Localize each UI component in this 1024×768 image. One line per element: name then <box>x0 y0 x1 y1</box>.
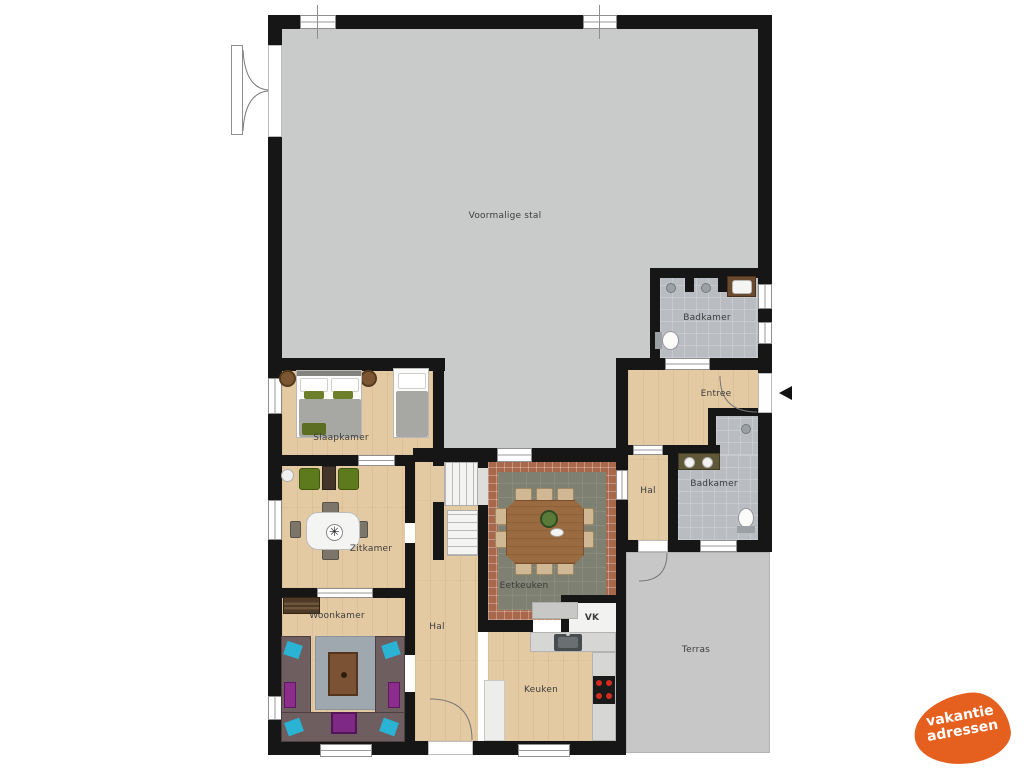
table-plant <box>540 510 558 528</box>
room-label-voormalige-stal: Voormalige stal <box>469 211 542 221</box>
armchair-2 <box>338 468 359 490</box>
wall-badkamer-step-h <box>712 408 758 416</box>
room-label-badkamer-boven: Badkamer <box>683 313 731 323</box>
window-top-1 <box>300 15 336 29</box>
wall-badkamer-step-v <box>708 408 716 455</box>
wall-woon-hal-a <box>405 598 415 655</box>
table-dish <box>550 528 564 537</box>
pillow-left <box>300 378 328 392</box>
room-label-woonkamer: Woonkamer <box>309 611 364 621</box>
sink-faucet <box>566 632 570 636</box>
double-bed <box>296 370 362 438</box>
bathroom-sink-top <box>727 276 756 297</box>
wall-eet-keuken-a <box>478 620 533 632</box>
wall-woon-hal-b <box>405 692 415 741</box>
shower-divider-2 <box>718 268 727 292</box>
wall-top <box>268 15 772 29</box>
shower-divider-1 <box>685 268 694 292</box>
coffee-table-knob <box>341 672 347 678</box>
window-top-2 <box>583 15 617 29</box>
window-badkamer-boven-1 <box>758 284 772 309</box>
window-eetkeuken-hal-rechts <box>616 470 628 500</box>
single-bed-pillow <box>398 373 426 389</box>
dining-chair-t1 <box>515 488 532 501</box>
wall-entree-top-a <box>628 358 665 370</box>
armchair-1 <box>299 468 320 490</box>
vanity <box>678 453 720 470</box>
toilet-top-tank <box>655 332 662 349</box>
nightstand-left <box>279 370 296 387</box>
burner-4 <box>606 693 612 699</box>
window-stal-eetkeuken <box>497 448 532 462</box>
dining-chair-t3 <box>557 488 574 501</box>
room-label-vk: VK <box>585 613 599 623</box>
hal-door-opening <box>428 741 473 755</box>
nightstand-right <box>360 370 377 387</box>
wall-halr-badkamer <box>668 455 678 540</box>
room-label-terras: Terras <box>682 645 710 655</box>
shower-head-3 <box>741 424 751 434</box>
cooktop <box>593 676 615 704</box>
wall-zit-hal-a <box>405 462 415 523</box>
wall-south-right-b <box>668 540 700 552</box>
stal-double-door-panels <box>231 45 243 135</box>
window-zit-woonkamer <box>317 588 373 598</box>
wall-south-right-a <box>616 540 638 552</box>
window-zitkamer-left <box>268 500 282 540</box>
stairs-landing <box>478 468 488 505</box>
vanity-basin-1 <box>684 457 695 468</box>
stal-double-door-opening <box>268 45 282 137</box>
kitchen-sink <box>554 634 582 651</box>
room-badkamer-rechts-upper <box>716 416 758 455</box>
bench-purple <box>331 712 357 734</box>
room-label-hal-rechts: Hal <box>640 486 655 496</box>
room-label-entree: Entree <box>701 389 732 399</box>
wall-vert-616-c <box>616 552 626 755</box>
vanity-basin-2 <box>702 457 713 468</box>
window-woonkamer-left <box>268 696 282 720</box>
side-lamp <box>281 469 294 482</box>
logo-text: vakantie adressen <box>911 701 1011 747</box>
double-bed-headboard <box>297 371 361 376</box>
stairs-upper <box>444 462 478 506</box>
wall-south-right-c <box>737 540 772 552</box>
wall-entree-top-b <box>710 358 758 370</box>
green-pillow-right <box>333 391 353 399</box>
terras-door-opening <box>638 540 668 552</box>
sink-basin-top <box>732 280 752 294</box>
vakantieadressen-logo: vakantie adressen <box>910 688 1015 768</box>
zitkamer-centerpiece: ✳ <box>326 524 343 541</box>
wall-stal-bottom-b <box>532 448 616 462</box>
window-woonkamer-bottom <box>320 744 372 757</box>
wall-slaap-zit-a <box>268 455 358 466</box>
sink-basin <box>558 637 578 648</box>
entrance-arrow-icon <box>779 386 792 400</box>
wall-entree-hal-a <box>616 445 633 455</box>
window-badkamer-boven-2 <box>758 322 772 344</box>
zitkamer-chair-bottom <box>322 549 339 560</box>
room-voormalige-stal-mid <box>444 358 616 448</box>
wall-zit-woon-b <box>373 588 415 598</box>
shower-head-1 <box>666 283 676 293</box>
zitkamer-chair-left <box>290 521 301 538</box>
single-bed-duvet <box>396 391 428 437</box>
wall-hal-eetkeuken-b <box>478 505 488 620</box>
coffee-table <box>328 652 358 696</box>
room-hal-rechts <box>628 455 668 540</box>
doormat <box>532 602 578 619</box>
toilet-top-bowl <box>662 331 679 350</box>
single-bed <box>393 368 429 438</box>
room-voormalige-stal <box>282 29 758 270</box>
green-pillow-left <box>304 391 324 399</box>
window-slaap-zitkamer <box>358 455 395 466</box>
toilet-right-tank <box>737 526 755 533</box>
room-label-keuken: Keuken <box>524 685 558 695</box>
purple-pillow-2 <box>388 682 400 708</box>
wall-zit-hal-b <box>405 543 415 588</box>
dining-chair-t2 <box>536 488 553 501</box>
stairs-lower <box>447 510 478 556</box>
room-voormalige-stal-lower <box>282 270 650 358</box>
room-label-eetkeuken: Eetkeuken <box>500 581 549 591</box>
window-entree-hal <box>633 445 663 455</box>
wall-hal-eetkeuken-a <box>478 448 488 468</box>
armchair-side-table <box>322 466 336 490</box>
purple-pillow-1 <box>284 682 296 708</box>
room-label-slaapkamer: Slaapkamer <box>313 433 369 443</box>
pillow-right <box>331 378 359 392</box>
entree-door-opening <box>758 373 772 413</box>
shower-head-2 <box>701 283 711 293</box>
window-badkamer-entree <box>665 358 710 370</box>
window-badkamer-terras <box>700 540 737 552</box>
window-top-2-tick <box>599 5 600 39</box>
kitchen-appliance <box>484 680 505 741</box>
burner-1 <box>596 680 602 686</box>
burner-2 <box>606 680 612 686</box>
room-label-zitkamer: Zitkamer <box>350 544 392 554</box>
window-top-1-tick <box>317 5 318 39</box>
burner-3 <box>596 693 602 699</box>
room-label-badkamer-rechts: Badkamer <box>690 479 738 489</box>
wall-vert-hal-stub <box>433 502 444 560</box>
window-keuken-bottom <box>518 744 570 757</box>
room-label-hal: Hal <box>429 622 444 632</box>
toilet-right-bowl <box>738 508 754 528</box>
floor-plan: ✳ <box>0 0 1024 768</box>
